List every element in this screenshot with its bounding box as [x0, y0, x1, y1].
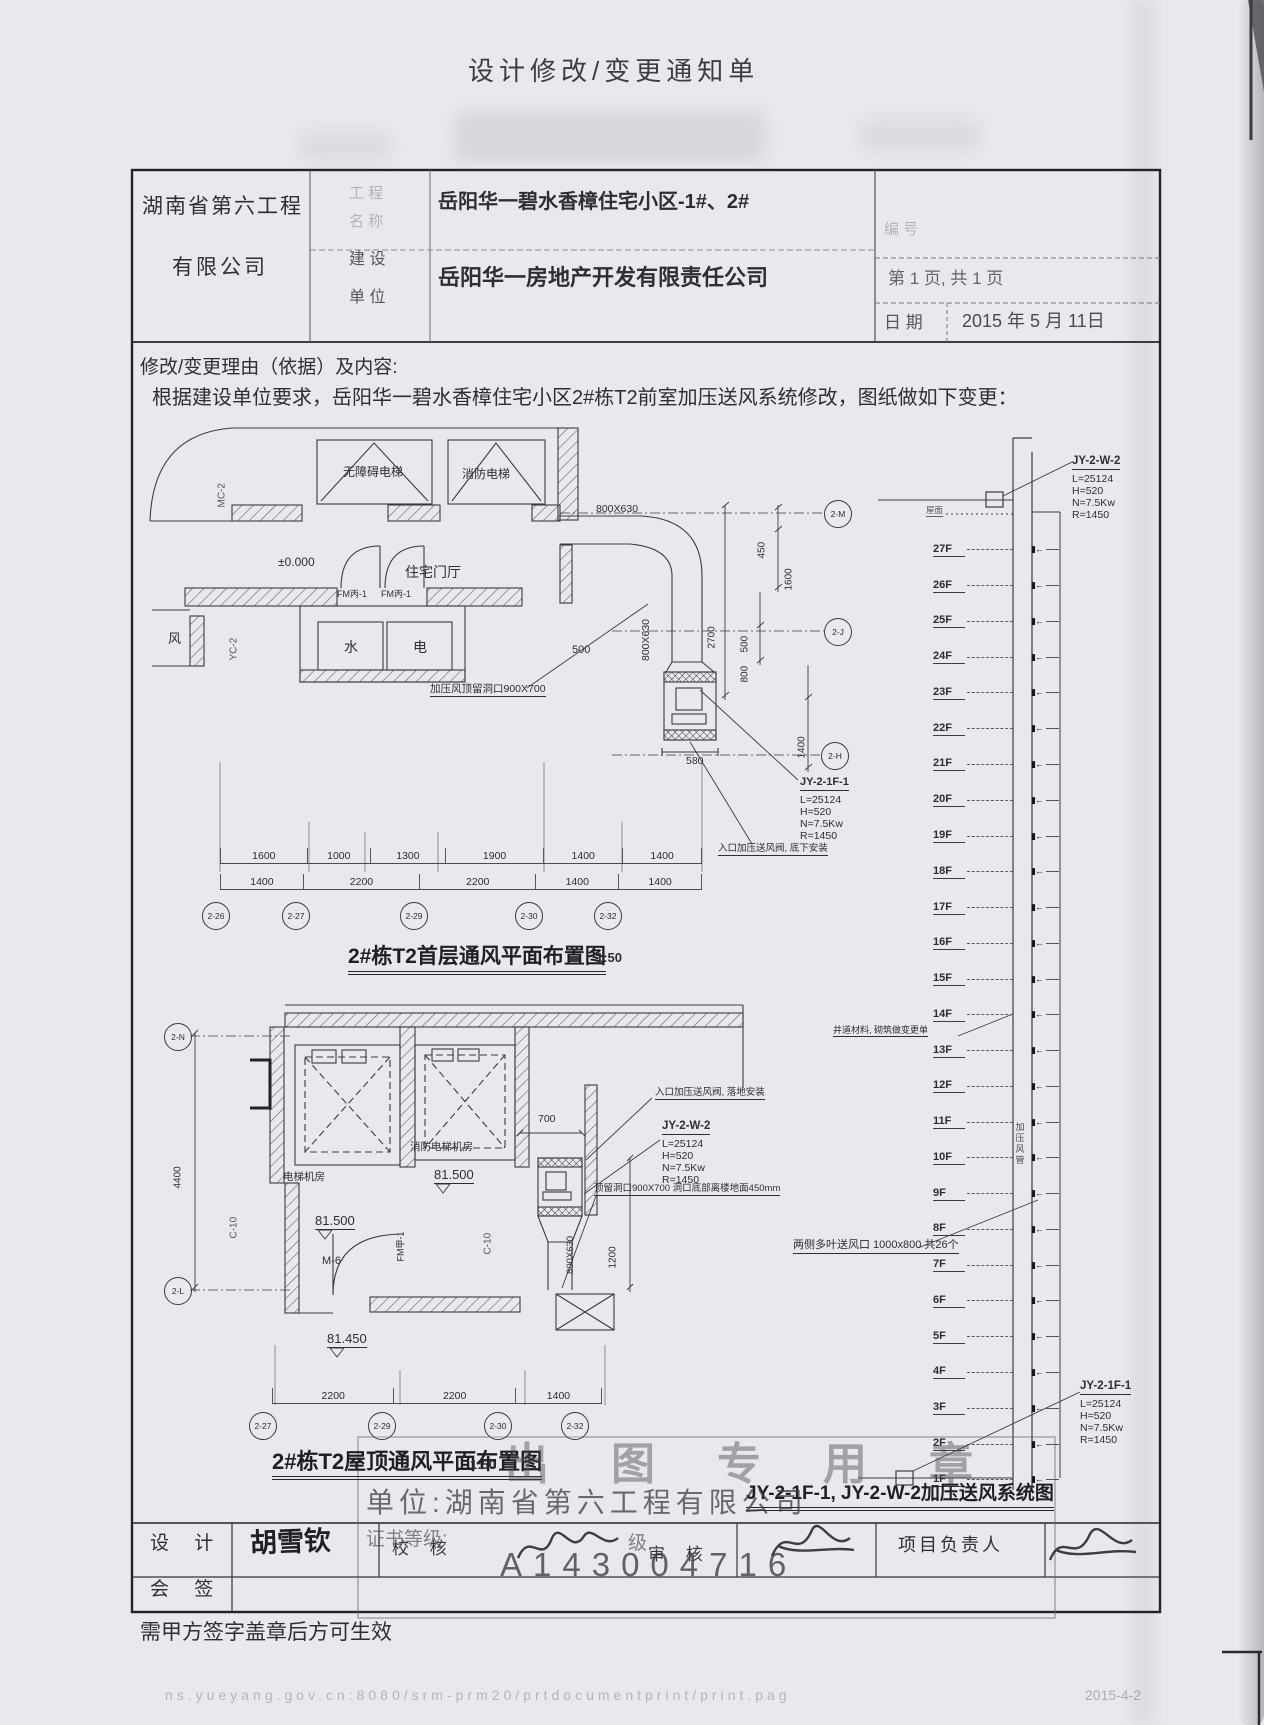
damper-arrow-icon [1031, 723, 1046, 734]
riser-floor-row: 21F [933, 747, 1059, 783]
project-name-label-bottom: 名 称 [349, 214, 383, 230]
hole-note-plan2: 顶留洞口900X700 洞口底部离楼地面450mm [594, 1184, 780, 1196]
shaft-material-note: 井道材料, 砌筑做变更单 [833, 1026, 928, 1037]
riser-floor-row: 9F [933, 1176, 1059, 1212]
machine-room1-label: 电梯机房 [283, 1172, 325, 1183]
scanned-change-notice-document: 设计修改/变更通知单 湖南省第六工程 有限公司 工 程 名 称 岳阳华一碧水香樟… [0, 0, 1264, 1725]
riser-floor-row: 10F [933, 1140, 1059, 1176]
fan-airflow: L=25124 [662, 1138, 710, 1150]
dim-value: 1400 [220, 874, 303, 889]
riser-floor-row: 4F [933, 1355, 1059, 1391]
damper-arrow-icon [1031, 1188, 1046, 1199]
fan-pressure: H=520 [1072, 485, 1120, 497]
riser-floor-row: 17F [933, 890, 1059, 926]
dim-value: 2200 [272, 1388, 393, 1403]
floor-leader-line [967, 1014, 1013, 1015]
builder-label-top: 建 设 [349, 252, 385, 269]
plan2-caption: 2#栋T2屋顶通风平面布置图 [272, 1450, 542, 1480]
branch-line [1046, 1086, 1059, 1087]
branch-line [1046, 1122, 1059, 1123]
grid-bubble: 2-L [164, 1277, 192, 1305]
doc-number-label: 编 号 [884, 222, 918, 238]
branch-line [1046, 800, 1059, 801]
plan2-scale: 1:50 [470, 1458, 496, 1472]
branch-line [1046, 728, 1059, 729]
company-name-line1: 湖南省第六工程 [142, 196, 303, 218]
fan-pressure: H=520 [1080, 1410, 1131, 1422]
fan-rpm: R=1450 [1080, 1434, 1131, 1446]
damper-arrow-icon [1031, 1260, 1046, 1271]
damper-arrow-icon [1031, 1295, 1046, 1306]
branch-line [1046, 621, 1059, 622]
door-tag-fm1: FM丙-1 [337, 590, 367, 599]
damper-arrow-icon [1031, 1152, 1046, 1163]
damper-arrow-icon [1031, 759, 1046, 770]
floor-leader-line [967, 871, 1013, 872]
branch-line [1046, 1479, 1059, 1480]
damper-arrow-icon [1031, 616, 1046, 627]
valve-note-plan1: 入口加压送风阀, 底下安装 [718, 844, 828, 856]
damper-arrow-icon [1031, 974, 1046, 985]
grid-bubble: 2-30 [515, 902, 543, 930]
damper-arrow-icon [1031, 795, 1046, 806]
fan-airflow: L=25124 [1072, 473, 1120, 485]
dim-500-right: 500 [741, 636, 752, 653]
grid-bubble: 2-N [164, 1023, 192, 1051]
louver-note: 两侧多叶送风口 1000x800 共26个 [793, 1240, 959, 1254]
floor-leader-line [967, 907, 1013, 908]
fan-power: N=7.5Kw [800, 818, 849, 830]
builder-name-value: 岳阳华一房地产开发有限责任公司 [438, 266, 768, 289]
window-tag-c10-left: C-10 [230, 1217, 241, 1239]
branch-line [1046, 907, 1059, 908]
riser-floor-list: 27F 26F 25F 24F 23F [933, 532, 1059, 1498]
floor-label: 22F [933, 722, 965, 736]
damper-arrow-icon [1031, 938, 1046, 949]
dim-700: 700 [538, 1114, 556, 1125]
fan-power: N=7.5Kw [1080, 1422, 1131, 1434]
floor-label: 26F [933, 579, 965, 593]
floor-leader-line [967, 1193, 1013, 1194]
fan-airflow: L=25124 [1080, 1398, 1131, 1410]
riser-floor-row: 25F [933, 604, 1059, 640]
riser-floor-row: 13F [933, 1033, 1059, 1069]
dim-value: 2200 [393, 1388, 514, 1403]
damper-arrow-icon [1031, 902, 1046, 913]
floor-label: 12F [933, 1079, 965, 1093]
branch-line [1046, 1408, 1059, 1409]
damper-arrow-icon [1031, 1367, 1046, 1378]
dim-800: 800 [741, 666, 752, 683]
scan-ghost-blob [860, 120, 980, 150]
plan1-dim-chain-row1: 160010001300190014001400 [220, 848, 702, 864]
level-81500-a: 81.500 [315, 1214, 355, 1230]
floor-label: 19F [933, 829, 965, 843]
floor-label: 7F [933, 1258, 965, 1272]
project-name-value: 岳阳华一碧水香樟住宅小区-1#、2# [438, 192, 749, 213]
dim-500: 500 [572, 645, 590, 657]
floor-label: 14F [933, 1008, 965, 1022]
grid-bubble: 2-29 [400, 902, 428, 930]
dim-value: 2200 [303, 874, 419, 889]
hole-note-plan1: 加压风顶留洞口900X700 [430, 684, 546, 697]
dim-value: 1000 [307, 848, 370, 863]
riser-floor-row: 14F [933, 997, 1059, 1033]
fan-rpm: R=1450 [1072, 509, 1120, 521]
duct-size-plan2: 800X630 [566, 1236, 576, 1274]
grid-bubble: 2-27 [282, 902, 310, 930]
plan2-fan-label: JY-2-W-2 L=25124 H=520 N=7.5Kw R=1450 [662, 1120, 710, 1186]
floor-leader-line [967, 1372, 1013, 1373]
floor-leader-line [967, 1336, 1013, 1337]
floor-leader-line [967, 1122, 1013, 1123]
elevator1-label: 无障碍电梯 [343, 466, 403, 479]
branch-line [1046, 1229, 1059, 1230]
riser-floor-row: 24F [933, 639, 1059, 675]
damper-arrow-icon [1031, 1224, 1046, 1235]
floor-leader-line [967, 1265, 1013, 1266]
floor-leader-line [967, 1300, 1013, 1301]
floor-leader-line [967, 1408, 1013, 1409]
riser-floor-row: 6F [933, 1283, 1059, 1319]
branch-line [1046, 1014, 1059, 1015]
riser-floor-row: 22F [933, 711, 1059, 747]
branch-line [1046, 764, 1059, 765]
dim-value: 1600 [220, 848, 307, 863]
riser-floor-row: 5F [933, 1319, 1059, 1355]
fan-name: JY-2-W-2 [1072, 455, 1120, 470]
stamp-title: 出图专用章 [505, 1442, 1035, 1488]
floor-leader-line [967, 657, 1013, 658]
floor-label: 8F [933, 1222, 965, 1236]
date-value: 2015 年 5 月 11日 [962, 312, 1105, 331]
floor-leader-line [967, 728, 1013, 729]
riser-fan-top-label: JY-2-W-2 L=25124 H=520 N=7.5Kw R=1450 [1072, 455, 1120, 521]
grid-bubble: 2-J [824, 618, 852, 646]
duct-size-horizontal: 800X630 [596, 504, 638, 515]
damper-arrow-icon [1031, 544, 1046, 555]
floor-leader-line [967, 1050, 1013, 1051]
plan2-dim-chain: 220022001400 [272, 1388, 602, 1404]
damper-arrow-icon [1031, 1117, 1046, 1128]
floor-label: 3F [933, 1401, 965, 1415]
branch-line [1046, 1265, 1059, 1266]
dim-value: 1400 [622, 848, 702, 863]
riser-floor-row: 11F [933, 1104, 1059, 1140]
floor-leader-line [967, 979, 1013, 980]
project-name-label-top: 工 程 [349, 186, 383, 202]
grid-bubble: 2-27 [249, 1412, 277, 1440]
floor-label: 25F [933, 614, 965, 628]
fan-power: N=7.5Kw [1072, 497, 1120, 509]
dim-1400: 1400 [798, 736, 809, 758]
elevator2-label: 消防电梯 [462, 468, 510, 481]
dim-4400: 4400 [174, 1166, 185, 1188]
grid-bubble: 2-32 [561, 1412, 589, 1440]
branch-line [1046, 585, 1059, 586]
floor-leader-line [967, 943, 1013, 944]
riser-floor-row: 3F [933, 1390, 1059, 1426]
branch-line [1046, 692, 1059, 693]
door-tag-fm-jia1: FM甲-1 [397, 1231, 406, 1261]
floor-label: 11F [933, 1115, 965, 1129]
branch-line [1046, 1300, 1059, 1301]
reason-content: 根据建设单位要求，岳阳华一碧水香樟住宅小区2#栋T2前室加压送风系统修改，图纸做… [152, 388, 1018, 409]
floor-leader-line [967, 836, 1013, 837]
duct-size-vertical: 800X630 [641, 619, 652, 661]
plan1-caption: 2#栋T2首层通风平面布置图 [348, 946, 606, 975]
power-room-label: 电 [413, 640, 427, 655]
door-tag-fm2: FM丙-1 [381, 590, 411, 599]
level-mark: ±0.000 [278, 556, 315, 569]
riser-fan-bottom-label: JY-2-1F-1 L=25124 H=520 N=7.5Kw R=1450 [1080, 1380, 1131, 1446]
roof-level-label: 屋面 [926, 506, 943, 517]
riser-floor-row: 23F [933, 675, 1059, 711]
fan-rpm: R=1450 [800, 830, 849, 842]
damper-arrow-icon [1031, 580, 1046, 591]
scan-ghost-blob [455, 112, 765, 162]
window-tag-yc2: YC-2 [230, 638, 241, 661]
dim-value: 1400 [543, 848, 622, 863]
fan-name: JY-2-1F-1 [1080, 1380, 1131, 1395]
floor-label: 27F [933, 543, 965, 557]
valve-note-plan2: 入口加压送风阀, 落地安装 [655, 1088, 765, 1100]
damper-arrow-icon [1031, 1081, 1046, 1092]
company-name-line2: 有限公司 [172, 257, 268, 279]
floor-label: 17F [933, 901, 965, 915]
grid-bubble: 2-26 [202, 902, 230, 930]
riser-floor-row: 18F [933, 854, 1059, 890]
designer-signature: 胡雪钦 [250, 1527, 332, 1558]
branch-line [1046, 1050, 1059, 1051]
dim-2700: 2700 [708, 626, 719, 648]
floor-label: 24F [933, 650, 965, 664]
print-footer-date: 2015-4-2 [1085, 1688, 1141, 1703]
floor-label: 9F [933, 1187, 965, 1201]
grid-bubble: 2-30 [484, 1412, 512, 1440]
fan-power: N=7.5Kw [662, 1162, 710, 1174]
wind-label: 风 [168, 632, 181, 646]
floor-label: 21F [933, 757, 965, 771]
grid-bubble: 2-H [821, 742, 849, 770]
damper-arrow-icon [1031, 1331, 1046, 1342]
dim-1600: 1600 [785, 568, 796, 590]
review-label: 审 核 [648, 1546, 711, 1564]
floor-label: 15F [933, 972, 965, 986]
floor-leader-line [967, 621, 1013, 622]
floor-leader-line [967, 692, 1013, 693]
branch-line [1046, 1336, 1059, 1337]
stamp-unit-line: 单位:湖南省第六工程有限公司 [366, 1488, 808, 1517]
floor-leader-line [967, 764, 1013, 765]
fan-name: JY-2-1F-1 [800, 776, 849, 791]
branch-line [1046, 836, 1059, 837]
damper-arrow-icon [1031, 687, 1046, 698]
riser-floor-row: 12F [933, 1068, 1059, 1104]
project-manager-signature [1050, 1529, 1136, 1560]
builder-label-bottom: 单 位 [349, 290, 385, 307]
floor-label: 18F [933, 865, 965, 879]
riser-floor-row: 19F [933, 818, 1059, 854]
page-count: 第 1 页, 共 1 页 [888, 270, 1003, 288]
floor-leader-line [967, 800, 1013, 801]
print-footer-url: ns.yueyang.gov.cn:8080/srm-prm20/prtdocu… [165, 1688, 791, 1703]
page-title: 设计修改/变更通知单 [468, 58, 759, 85]
level-81450: 81.450 [327, 1332, 367, 1348]
dim-580: 580 [686, 756, 704, 767]
damper-arrow-icon [1031, 1403, 1046, 1414]
window-tag-c10-right: C-10 [484, 1233, 495, 1255]
dim-value: 1400 [515, 1388, 602, 1403]
date-label: 日 期 [884, 314, 923, 332]
floor-label: 10F [933, 1151, 965, 1165]
floor-label: 6F [933, 1294, 965, 1308]
branch-line [1046, 871, 1059, 872]
lobby-label: 住宅门厅 [405, 565, 461, 580]
floor-leader-line [967, 585, 1013, 586]
dim-value: 1900 [445, 848, 543, 863]
damper-arrow-icon [1031, 831, 1046, 842]
duct-vertical-label: 加压风管 [1014, 1122, 1023, 1166]
dim-1200: 1200 [609, 1246, 620, 1268]
validity-note: 需甲方签字盖章后方可生效 [140, 1622, 392, 1644]
floor-label: 23F [933, 686, 965, 700]
damper-arrow-icon [1031, 866, 1046, 877]
dim-value: 1300 [370, 848, 445, 863]
grid-bubble: 2-M [824, 500, 852, 528]
floor-label: 16F [933, 936, 965, 950]
branch-line [1046, 1157, 1059, 1158]
dim-value: 2200 [419, 874, 535, 889]
fan-name: JY-2-W-2 [662, 1120, 710, 1135]
floor-leader-line [967, 1229, 1013, 1230]
plan1-scale: 1:50 [596, 951, 622, 965]
window-tag-mc2: MC-2 [218, 483, 229, 507]
branch-line [1046, 1372, 1059, 1373]
dim-value: 1400 [535, 874, 618, 889]
riser-floor-row: 27F [933, 532, 1059, 568]
water-room-label: 水 [344, 640, 358, 655]
damper-arrow-icon [1031, 652, 1046, 663]
scan-ghost-blob [300, 132, 390, 160]
floor-leader-line [967, 1157, 1013, 1158]
floor-label: 13F [933, 1044, 965, 1058]
fan-pressure: H=520 [662, 1150, 710, 1162]
cosign-label: 会 签 [150, 1580, 223, 1600]
floor-label: 5F [933, 1330, 965, 1344]
branch-line [1046, 657, 1059, 658]
machine-room2-label: 消防电梯机房 [410, 1142, 473, 1153]
riser-floor-row: 20F [933, 782, 1059, 818]
fan-label-jy-2-1f-1: JY-2-1F-1 L=25124 H=520 N=7.5Kw R=1450 [800, 776, 849, 842]
fan-airflow: L=25124 [800, 794, 849, 806]
floor-label: 4F [933, 1365, 965, 1379]
branch-line [1046, 1193, 1059, 1194]
riser-floor-row: 15F [933, 961, 1059, 997]
floor-label: 20F [933, 793, 965, 807]
check-label: 校 核 [392, 1540, 455, 1558]
level-81500-b: 81.500 [434, 1168, 474, 1184]
dim-450: 450 [758, 542, 769, 559]
paper-edge-shadow [1238, 0, 1264, 1725]
plan1-dim-chain-row2: 14002200220014001400 [220, 874, 702, 890]
branch-line [1046, 549, 1059, 550]
riser-floor-row: 16F [933, 925, 1059, 961]
dim-value: 1400 [618, 874, 702, 889]
fan-pressure: H=520 [800, 806, 849, 818]
grid-bubble: 2-32 [594, 902, 622, 930]
design-label: 设 计 [150, 1534, 223, 1554]
branch-line [1046, 1444, 1059, 1445]
door-tag-m6: M-6 [322, 1256, 341, 1268]
paper-crease [1130, 0, 1156, 1725]
pm-label: 项目负责人 [898, 1536, 1003, 1555]
damper-arrow-icon [1031, 1009, 1046, 1020]
branch-line [1046, 943, 1059, 944]
grid-bubble: 2-29 [368, 1412, 396, 1440]
damper-arrow-icon [1031, 1045, 1046, 1056]
reason-label: 修改/变更理由（依据）及内容: [140, 358, 398, 378]
floor-leader-line [967, 1086, 1013, 1087]
branch-line [1046, 979, 1059, 980]
floor-leader-line [967, 549, 1013, 550]
riser-floor-row: 26F [933, 568, 1059, 604]
